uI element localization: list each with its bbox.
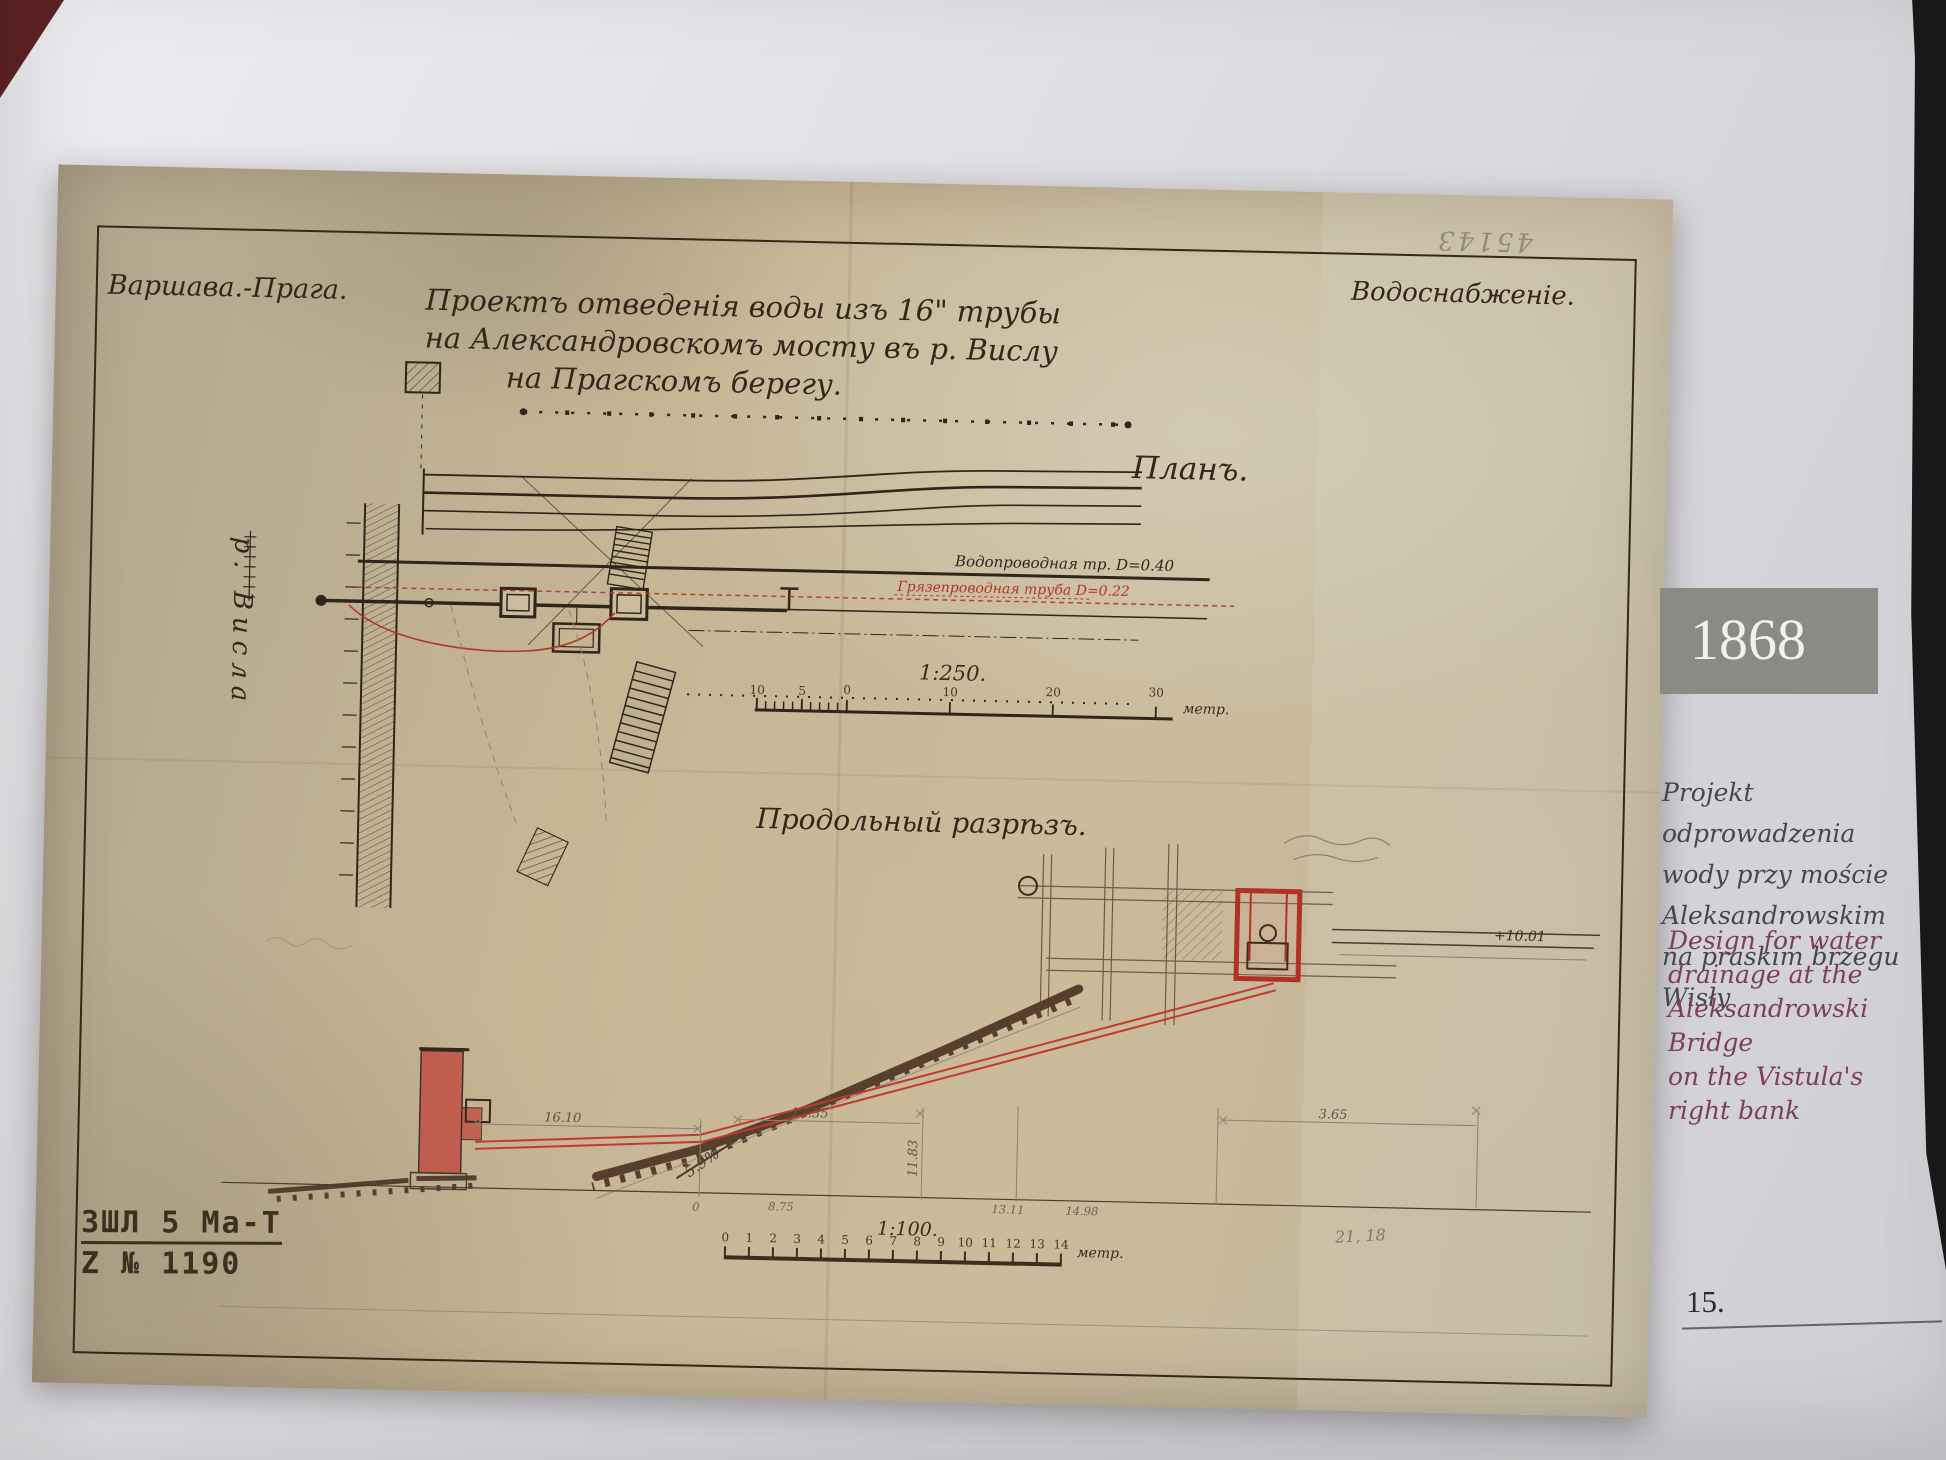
photo-corner-shadow — [0, 0, 64, 98]
svg-text:0: 0 — [843, 683, 851, 697]
caption-en-line-4: on the Vistula's — [1668, 1060, 1946, 1094]
svg-text:3: 3 — [793, 1232, 801, 1246]
svg-text:12: 12 — [1005, 1236, 1021, 1250]
plan-scale-labels: 1:250. 10 5 0 10 20 30 метр. — [749, 657, 1230, 718]
svg-text:30: 30 — [1148, 685, 1164, 699]
svg-text:3.65: 3.65 — [1318, 1107, 1347, 1123]
svg-text:16.10: 16.10 — [544, 1110, 582, 1126]
svg-text:11: 11 — [981, 1236, 997, 1250]
plan-view-group — [236, 359, 1239, 926]
svg-text:13.11: 13.11 — [991, 1202, 1024, 1217]
book-page-photo: 45143 Варшава.-Прага. Водоснабженіе. Про… — [0, 0, 1946, 1460]
svg-text:6: 6 — [865, 1233, 873, 1247]
svg-text:10: 10 — [749, 683, 765, 697]
svg-text:14: 14 — [1053, 1237, 1069, 1251]
book-edge-shadow — [1899, 0, 1946, 1460]
svg-text:0: 0 — [692, 1200, 700, 1214]
svg-text:17.35: 17.35 — [791, 1106, 829, 1122]
svg-text:21, 18: 21, 18 — [1334, 1225, 1387, 1246]
svg-text:+10.01: +10.01 — [1494, 928, 1546, 945]
caption-pl-line-2: wody przy moście — [1662, 854, 1946, 895]
svg-text:9: 9 — [937, 1235, 945, 1249]
svg-text:1: 1 — [745, 1231, 753, 1245]
page-number: 15. — [1686, 1284, 1725, 1320]
caption-en-line-1: Design for water — [1668, 924, 1946, 958]
svg-text:5: 5 — [841, 1233, 849, 1247]
svg-text:8: 8 — [913, 1234, 921, 1248]
section-labels: +10.01 16.10 17.35 3.65 11.83 5.9% 0 8.7… — [541, 907, 1546, 1271]
year-text: 1868 — [1690, 607, 1806, 672]
svg-text:13: 13 — [1029, 1237, 1045, 1251]
svg-text:5: 5 — [798, 684, 806, 698]
caption-english: Design for water drainage at the Aleksan… — [1668, 924, 1946, 1128]
page-number-rule — [1682, 1320, 1942, 1329]
svg-text:20: 20 — [1045, 685, 1061, 699]
year-badge: 1868 — [1660, 588, 1878, 694]
svg-text:2: 2 — [769, 1231, 777, 1245]
svg-text:10: 10 — [942, 685, 958, 699]
caption-en-line-2: drainage at the — [1668, 958, 1946, 992]
svg-text:1:100.: 1:100. — [877, 1218, 938, 1241]
svg-text:4: 4 — [817, 1232, 825, 1246]
svg-text:1:250.: 1:250. — [919, 660, 987, 685]
svg-text:0: 0 — [721, 1230, 729, 1244]
svg-text:14.98: 14.98 — [1065, 1204, 1098, 1219]
svg-text:метр.: метр. — [1183, 701, 1230, 718]
svg-text:7: 7 — [889, 1234, 897, 1248]
caption-en-line-3: Aleksandrowski Bridge — [1668, 992, 1946, 1060]
svg-text:метр.: метр. — [1077, 1245, 1124, 1262]
technical-drawing-linework: 1:250. 10 5 0 10 20 30 метр. — [32, 165, 1673, 1418]
archival-drawing-sheet: 45143 Варшава.-Прага. Водоснабженіе. Про… — [32, 165, 1673, 1418]
svg-text:11.83: 11.83 — [906, 1140, 922, 1178]
caption-en-line-5: right bank — [1668, 1094, 1946, 1128]
section-view-group — [219, 812, 1602, 1336]
svg-text:8.75: 8.75 — [768, 1199, 794, 1214]
caption-pl-line-1: Projekt odprowadzenia — [1662, 772, 1946, 854]
svg-text:10: 10 — [957, 1235, 973, 1249]
